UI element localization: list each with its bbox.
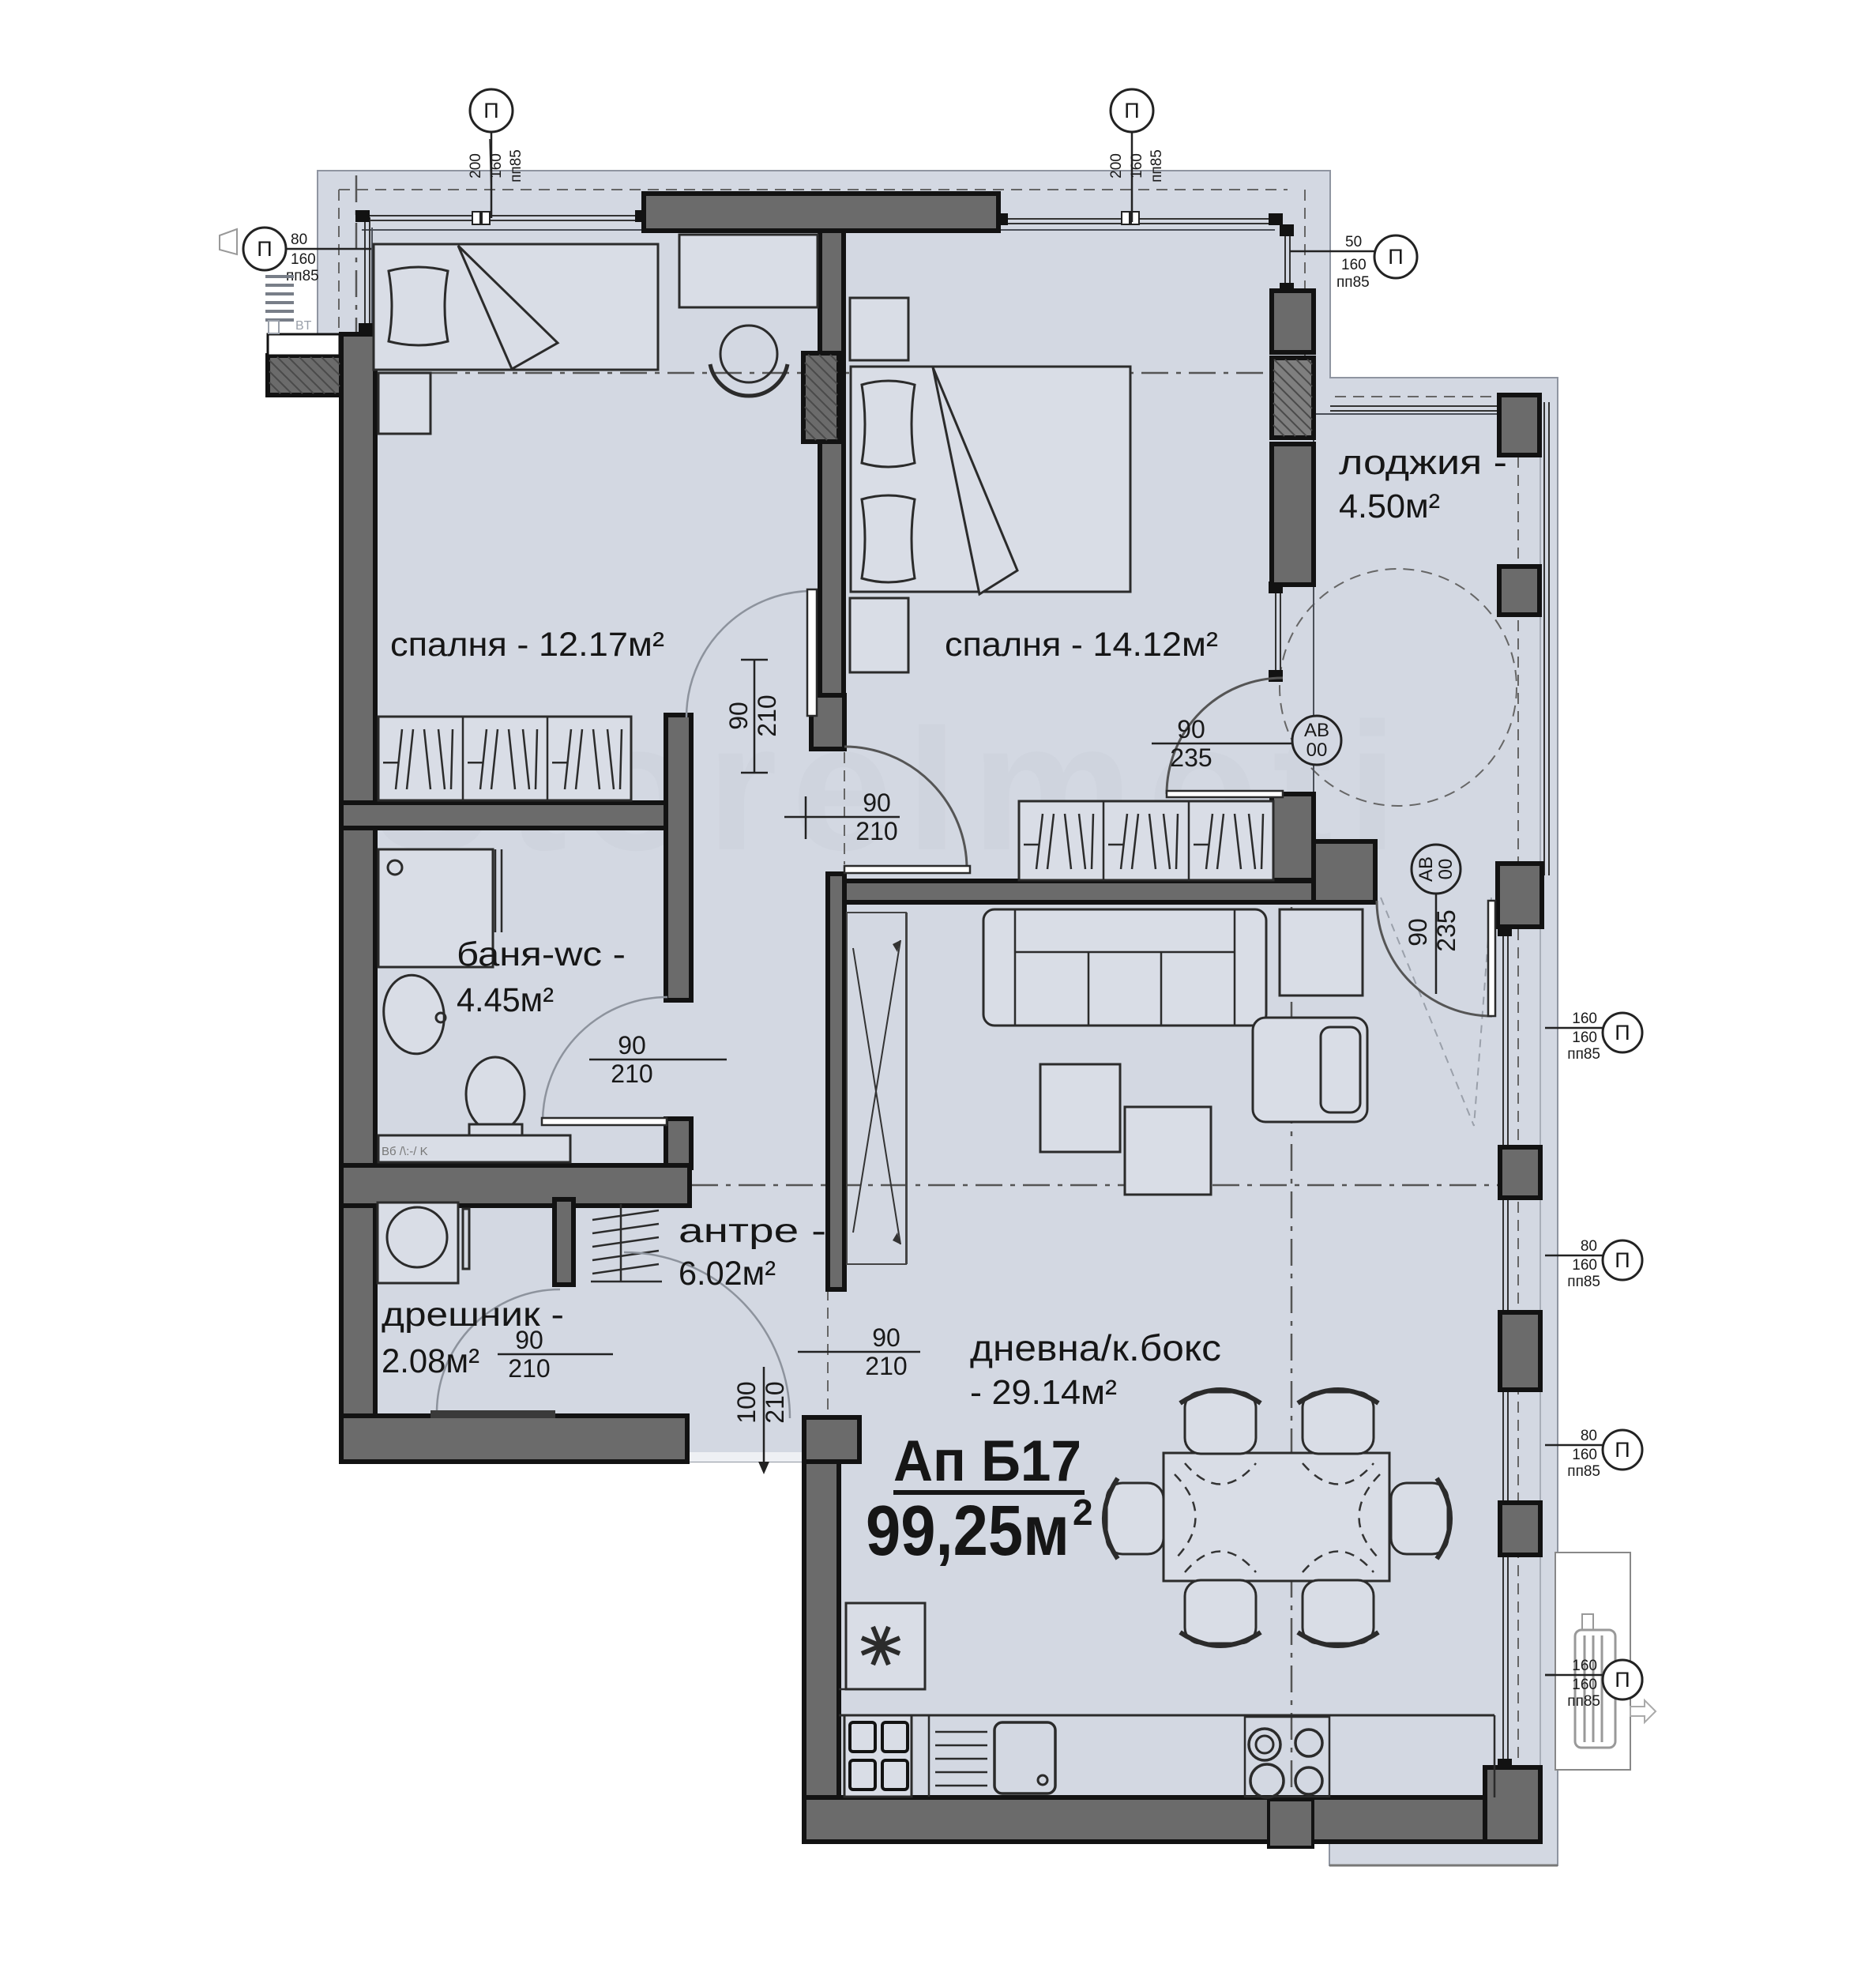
svg-text:П: П: [1388, 245, 1403, 269]
svg-text:2: 2: [1073, 1492, 1093, 1533]
svg-text:90: 90: [1177, 715, 1205, 743]
svg-text:210: 210: [855, 817, 897, 845]
svg-text:пп85: пп85: [1567, 1046, 1600, 1063]
svg-text:Ап Б17: Ап Б17: [893, 1429, 1081, 1493]
svg-text:АВ: АВ: [1415, 856, 1437, 882]
svg-text:210: 210: [865, 1352, 907, 1380]
svg-text:4.50м²: 4.50м²: [1339, 487, 1440, 525]
svg-text:пп85: пп85: [1567, 1274, 1600, 1290]
svg-text:пп85: пп85: [508, 149, 524, 183]
svg-text:80: 80: [1581, 1238, 1597, 1255]
svg-text:П: П: [1615, 1668, 1630, 1692]
svg-text:90: 90: [872, 1323, 900, 1352]
svg-text:П: П: [257, 237, 272, 261]
svg-text:П: П: [1615, 1021, 1630, 1044]
svg-text:99,25м: 99,25м: [866, 1492, 1070, 1571]
svg-text:50: 50: [1345, 234, 1362, 250]
svg-text:210: 210: [611, 1060, 652, 1088]
svg-text:6.02м²: 6.02м²: [679, 1255, 776, 1293]
svg-text:- 29.14м²: - 29.14м²: [970, 1373, 1117, 1412]
svg-text:П: П: [483, 99, 498, 122]
svg-text:210: 210: [753, 694, 781, 736]
svg-text:210: 210: [761, 1381, 789, 1423]
svg-text:антре -: антре -: [679, 1212, 826, 1250]
svg-text:BT: BT: [295, 319, 312, 333]
svg-text:80: 80: [291, 231, 307, 248]
svg-text:спалня - 12.17м²: спалня - 12.17м²: [390, 626, 664, 664]
svg-text:90: 90: [863, 789, 891, 817]
svg-text:дневна/к.бокс: дневна/к.бокс: [970, 1327, 1221, 1368]
svg-text:90: 90: [618, 1031, 646, 1060]
svg-text:00: 00: [1435, 859, 1457, 880]
svg-text:4.45м²: 4.45м²: [457, 981, 554, 1019]
svg-text:П: П: [1615, 1438, 1630, 1462]
svg-text:200: 200: [1108, 153, 1125, 179]
svg-text:П: П: [1124, 99, 1139, 122]
svg-text:200: 200: [468, 153, 484, 179]
svg-text:160: 160: [1572, 1658, 1597, 1674]
svg-text:дрешник -: дрешник -: [382, 1296, 564, 1334]
svg-text:пп85: пп85: [1149, 149, 1165, 183]
svg-text:лоджия -: лоджия -: [1339, 443, 1507, 482]
svg-text:пп85: пп85: [1567, 1463, 1600, 1480]
svg-text:спалня - 14.12м²: спалня - 14.12м²: [945, 626, 1218, 664]
svg-text:160: 160: [1341, 257, 1367, 273]
svg-text:160: 160: [1572, 1011, 1597, 1027]
svg-text:235: 235: [1170, 743, 1212, 772]
svg-text:160: 160: [1572, 1447, 1597, 1463]
svg-text:пп85: пп85: [1337, 274, 1370, 291]
svg-text:160: 160: [1572, 1257, 1597, 1274]
svg-text:210: 210: [508, 1354, 550, 1383]
svg-text:160: 160: [1572, 1029, 1597, 1046]
svg-text:пп85: пп85: [1567, 1693, 1600, 1710]
svg-text:2.08м²: 2.08м²: [382, 1342, 479, 1380]
svg-text:100: 100: [732, 1381, 761, 1423]
svg-text:АВ: АВ: [1304, 720, 1329, 741]
svg-text:90: 90: [724, 702, 753, 730]
svg-text:160: 160: [1572, 1677, 1597, 1693]
svg-text:П: П: [1615, 1248, 1630, 1272]
svg-text:баня-wc -: баня-wc -: [457, 935, 626, 973]
svg-text:160: 160: [1129, 153, 1145, 179]
svg-text:Bб /\:-/ K: Bб /\:-/ K: [382, 1145, 428, 1158]
svg-text:90: 90: [1404, 918, 1432, 947]
svg-text:235: 235: [1432, 909, 1461, 951]
svg-text:80: 80: [1581, 1428, 1597, 1444]
svg-text:00: 00: [1306, 740, 1328, 761]
svg-text:160: 160: [291, 251, 316, 268]
